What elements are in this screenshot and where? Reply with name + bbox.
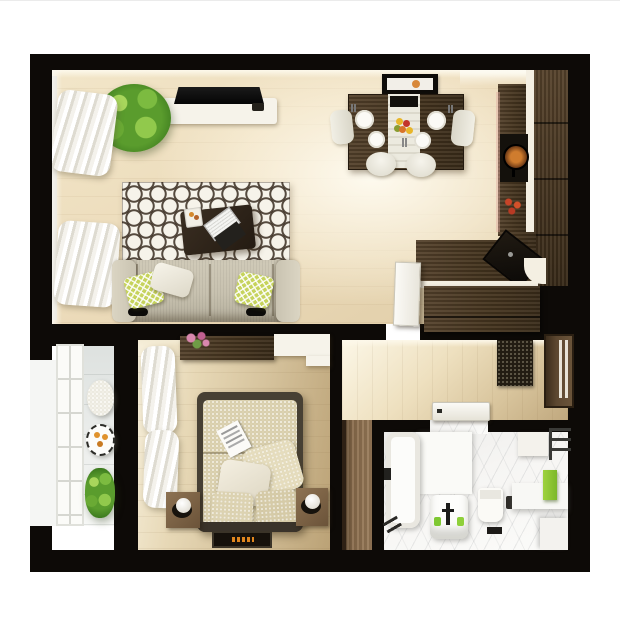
bathtub [386,432,420,528]
wicker-pouf [87,380,114,416]
door-handle-icon [437,409,442,413]
lamp-left-icon [176,498,191,513]
plate [427,111,446,130]
plate [368,131,385,148]
living-curtain-upper [49,89,119,178]
bathroom-side-counter [512,483,568,509]
balcony-window-light [30,360,56,526]
vanity-sink [430,495,468,539]
dining-chair-bottom-2 [406,153,436,177]
wall-bedroom-hall-divider [330,324,342,550]
sink-faucet-icon [508,252,513,257]
page-divider-line [0,0,620,1]
wall-bottom [30,550,590,572]
balcony-plant-icon [85,468,115,518]
bathroom-wall-cabinet [518,432,548,456]
wall-picture [387,78,433,90]
toilet-tank [480,490,501,499]
tub-faucet-icon [384,468,391,480]
hall-wardrobe [342,420,372,550]
bathroom-door-open [432,402,490,421]
tv-icon [174,87,264,104]
hall-builtin-closet [424,286,540,332]
soap-bottle-icon [434,517,441,526]
balcony-french-window [56,344,84,526]
balcony-table [86,424,115,456]
wall-right [568,54,590,572]
dining-chair-bottom-1 [366,152,396,176]
cutlery [402,138,404,147]
frying-pan-icon [503,144,529,170]
green-towel [543,470,557,500]
console-decor [252,103,264,111]
bath-mat [487,527,502,534]
tray-food [189,212,194,217]
towel-radiator-icon [549,428,571,460]
bedroom-rug [212,531,272,548]
shower-screen-area [416,432,472,494]
faucet-icon [446,503,450,525]
chili-peppers-icon [503,196,525,216]
sofa-seam [209,264,211,316]
living-curtain-lower [53,220,121,308]
pan-handle [512,168,515,177]
rug-logo-marks [232,537,254,542]
serving-tray [184,207,203,228]
wall-picture-frame [382,74,438,94]
wall-kitchen-block [540,286,568,340]
wall-hall-bath-left [384,420,430,432]
plate [414,132,431,149]
fruit-bowl [396,118,403,125]
front-door-panels [559,340,562,398]
bathroom-corner-unit [540,518,568,550]
bedroom-curtain-upper [140,345,177,434]
wall-top [30,54,590,70]
front-door [544,334,574,408]
soap-bottle-icon [457,517,464,526]
doormat [497,340,533,386]
flower-vase-icon [182,330,212,350]
menu-tray [390,96,418,107]
sofa-foot [246,308,266,316]
cutlery [351,104,353,112]
open-door-living-hall [393,262,421,327]
oranges-icon [94,432,100,438]
wall-left-upper [30,54,52,360]
picture-motif [412,80,420,88]
wall-balcony-divider [114,324,138,550]
lamp-right-icon [305,494,320,509]
plate [355,110,374,129]
dining-chair-left-1 [329,109,354,145]
toilet [478,488,503,522]
magazine-print [221,425,238,435]
bedroom-desk-return [306,356,330,366]
sofa-armrest-right [276,260,300,322]
apartment-floor-plan [0,0,620,618]
bedroom-desk [274,334,330,356]
cutlery [448,105,450,113]
wall-bathroom-left [372,420,384,550]
faucet-cross [442,509,454,512]
dining-chair-right-1 [450,109,476,147]
sofa-foot [128,308,148,316]
closet-seam [424,316,540,318]
hall-top-wall-face [342,340,568,347]
